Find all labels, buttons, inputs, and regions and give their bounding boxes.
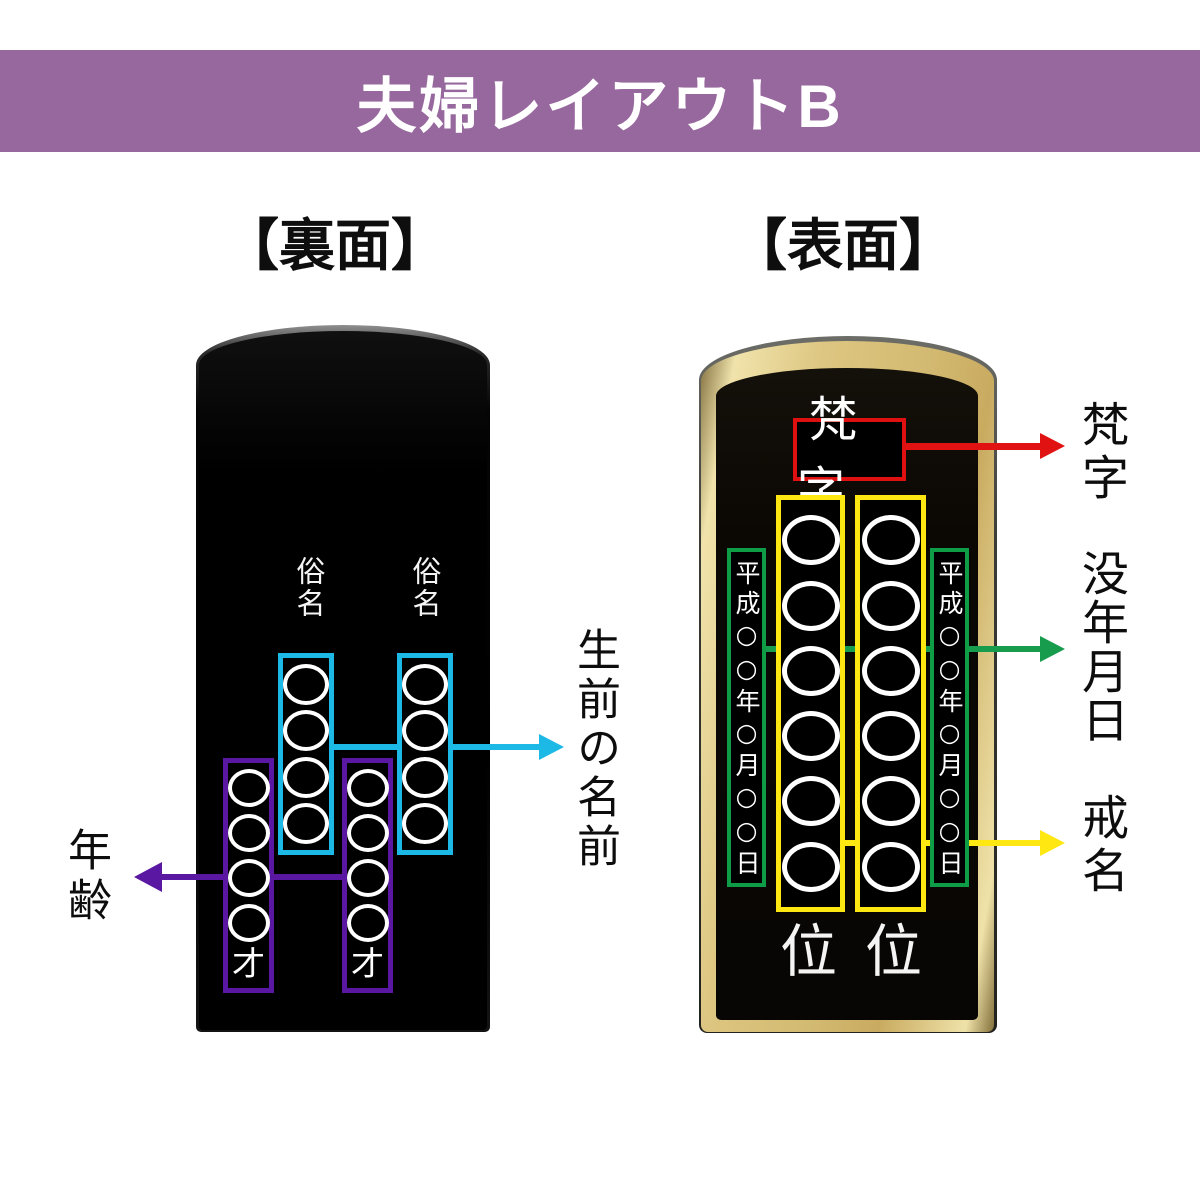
text-placeholder-circle xyxy=(402,803,448,844)
bonji-connector-line xyxy=(903,443,1040,450)
text-placeholder-circle xyxy=(862,711,920,761)
kaimyo-box-left xyxy=(776,495,845,912)
secular-name-caption-left: 俗名 xyxy=(287,556,323,620)
text-placeholder-circle xyxy=(283,664,329,705)
text-placeholder-circle xyxy=(228,814,270,852)
front-section-heading: 【表面】 xyxy=(653,210,1033,282)
rank-characters: 位 位 xyxy=(776,906,926,988)
text-placeholder-circle xyxy=(782,515,840,565)
callout-age: 年齢 xyxy=(63,827,107,927)
text-placeholder-circle xyxy=(402,757,448,798)
text-placeholder-circle xyxy=(347,814,389,852)
text-placeholder-circle xyxy=(347,859,389,897)
age-arrow-icon xyxy=(134,862,162,892)
death-date-box-right: 平成○○年○月○○日 xyxy=(930,548,969,887)
text-placeholder-circle xyxy=(862,776,920,826)
age-box-right: 才 xyxy=(342,758,393,993)
name-arrow-icon xyxy=(539,734,564,760)
death-date-box-left: 平成○○年○月○○日 xyxy=(727,548,766,887)
age-unit-label: 才 xyxy=(232,947,265,980)
text-placeholder-circle xyxy=(782,842,840,892)
text-placeholder-circle xyxy=(402,664,448,705)
text-placeholder-circle xyxy=(782,711,840,761)
text-placeholder-circle xyxy=(228,859,270,897)
given-name-box-left xyxy=(278,653,334,855)
text-placeholder-circle xyxy=(347,769,389,807)
age-unit-label: 才 xyxy=(351,947,384,980)
death-date-text: 平成○○年○月○○日 xyxy=(937,560,962,880)
text-placeholder-circle xyxy=(782,776,840,826)
text-placeholder-circle xyxy=(862,515,920,565)
text-placeholder-circle xyxy=(862,581,920,631)
text-placeholder-circle xyxy=(862,842,920,892)
rank-character-right: 位 xyxy=(865,906,922,988)
text-placeholder-circle xyxy=(228,904,270,942)
kaimyo-box-right xyxy=(855,495,926,912)
text-placeholder-circle xyxy=(228,769,270,807)
infographic-page: 夫婦レイアウトB 【裏面】 【表面】 俗名 俗名 才 才 生前の名前 年齢 梵字 xyxy=(0,0,1200,1200)
text-placeholder-circle xyxy=(862,646,920,696)
text-placeholder-circle xyxy=(402,710,448,751)
text-placeholder-circle xyxy=(283,710,329,751)
text-placeholder-circle xyxy=(782,646,840,696)
page-title: 夫婦レイアウトB xyxy=(356,58,843,145)
title-banner: 夫婦レイアウトB xyxy=(0,50,1200,152)
back-section-heading: 【裏面】 xyxy=(145,210,525,282)
death-date-arrow-icon xyxy=(1040,636,1065,662)
bonji-arrow-icon xyxy=(1040,433,1065,459)
callout-kaimyo: 戒名 xyxy=(1078,793,1125,899)
text-placeholder-circle xyxy=(347,904,389,942)
given-name-box-right xyxy=(397,653,453,855)
text-placeholder-circle xyxy=(283,803,329,844)
callout-lifetime-name: 生前の名前 xyxy=(572,627,616,872)
kaimyo-arrow-icon xyxy=(1040,830,1065,856)
death-date-text: 平成○○年○月○○日 xyxy=(734,560,759,880)
age-box-left: 才 xyxy=(223,758,274,993)
age-circles xyxy=(228,769,270,942)
text-placeholder-circle xyxy=(283,757,329,798)
callout-bonji: 梵字 xyxy=(1078,400,1125,506)
rank-character-left: 位 xyxy=(780,906,837,988)
secular-name-caption-right: 俗名 xyxy=(403,556,439,620)
age-circles xyxy=(347,769,389,942)
text-placeholder-circle xyxy=(782,581,840,631)
callout-death-date: 没年月日 xyxy=(1078,549,1125,745)
bonji-box: 梵字 xyxy=(793,418,906,481)
